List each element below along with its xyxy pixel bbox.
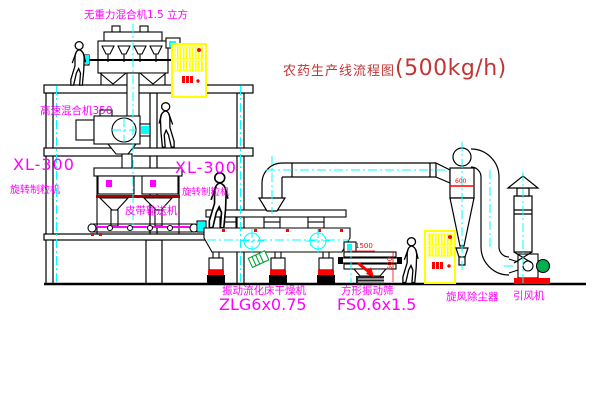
- floor-slab-mid: [44, 148, 253, 156]
- label-screen-model: FS0.6x1.5: [337, 297, 416, 313]
- diagram-title: 农药生产线流程图 (500kg/h): [283, 56, 507, 81]
- worker-top-floor: [71, 42, 86, 86]
- dim-cyclone: 600: [455, 179, 466, 185]
- label-belt-conveyor: 皮带输送机: [125, 206, 178, 217]
- label-dryer-model: ZLG6x0.75: [219, 297, 307, 313]
- dim-screen-length: 1500: [355, 243, 373, 250]
- control-cabinet-1: [172, 44, 206, 97]
- fluid-bed-dryer: [204, 210, 356, 283]
- dim-screen-height: 500: [387, 257, 394, 270]
- label-fan: 引风机: [513, 291, 545, 302]
- worker-granulator-floor: [209, 173, 228, 228]
- label-granulator-left-model: XL-300: [13, 157, 75, 173]
- fan-motor: [537, 260, 550, 273]
- label-granulator-center-name: 旋转制粒机: [182, 188, 230, 198]
- label-granulator-left-name: 旋转制粒机: [10, 186, 60, 196]
- control-cabinet-2: [425, 231, 455, 283]
- label-high-speed-mixer: 高速混合机350: [40, 106, 113, 117]
- label-gravity-mixer: 无重力混合机1.5 立方: [84, 10, 188, 21]
- building-pier: [146, 240, 162, 284]
- label-cyclone: 旋风除尘器: [446, 292, 499, 303]
- worker-mid-floor: [159, 103, 174, 147]
- title-capacity: (500kg/h): [395, 56, 507, 81]
- fan-base: [514, 278, 550, 284]
- granulator-center: [142, 176, 178, 194]
- floor-slab-low: [44, 234, 210, 240]
- dryer-feet: [207, 252, 335, 283]
- cyclone-inlet: [436, 163, 450, 183]
- induced-draft-fan: [509, 254, 550, 284]
- floor-slab-top: [44, 85, 253, 93]
- label-granulator-center-model: XL-300: [175, 160, 237, 176]
- granulator-left: [98, 176, 134, 194]
- dryer-tag: [248, 251, 269, 268]
- worker-ground: [403, 238, 418, 283]
- title-text: 农药生产线流程图: [283, 60, 395, 79]
- process-flow-diagram: 农药生产线流程图 (500kg/h) 无重力混合机1.5 立方 高速混合机350…: [0, 0, 600, 403]
